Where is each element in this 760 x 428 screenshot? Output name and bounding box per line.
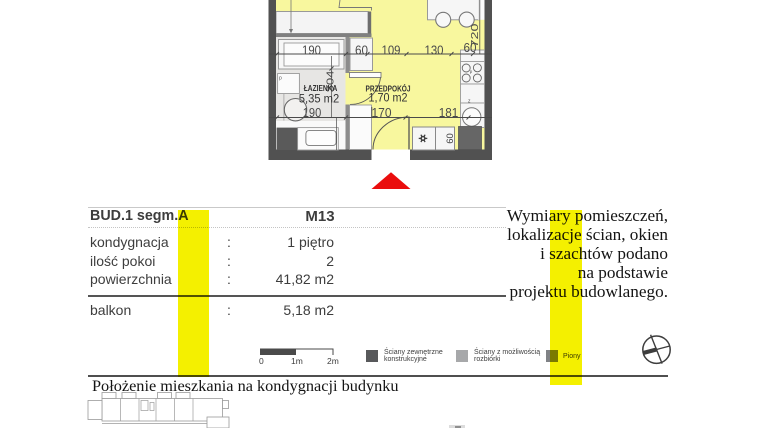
svg-text:190: 190 xyxy=(303,106,322,120)
svg-text:181: 181 xyxy=(439,106,459,120)
svg-text:5,35 m2: 5,35 m2 xyxy=(299,93,340,105)
svg-text:60: 60 xyxy=(445,133,456,144)
svg-text:p: p xyxy=(279,76,282,82)
svg-text:170: 170 xyxy=(372,106,392,120)
svg-text:720: 720 xyxy=(469,23,481,47)
svg-text:1,70 m2: 1,70 m2 xyxy=(369,93,408,105)
svg-text:2m: 2m xyxy=(327,356,339,366)
svg-text:60: 60 xyxy=(355,43,368,57)
svg-text:ŁAZIENKA: ŁAZIENKA xyxy=(304,83,338,93)
svg-text:109: 109 xyxy=(382,43,401,57)
svg-text:130: 130 xyxy=(425,43,444,57)
svg-text:190: 190 xyxy=(302,43,321,57)
svg-text:1m: 1m xyxy=(291,356,303,366)
svg-text:0: 0 xyxy=(259,356,264,366)
